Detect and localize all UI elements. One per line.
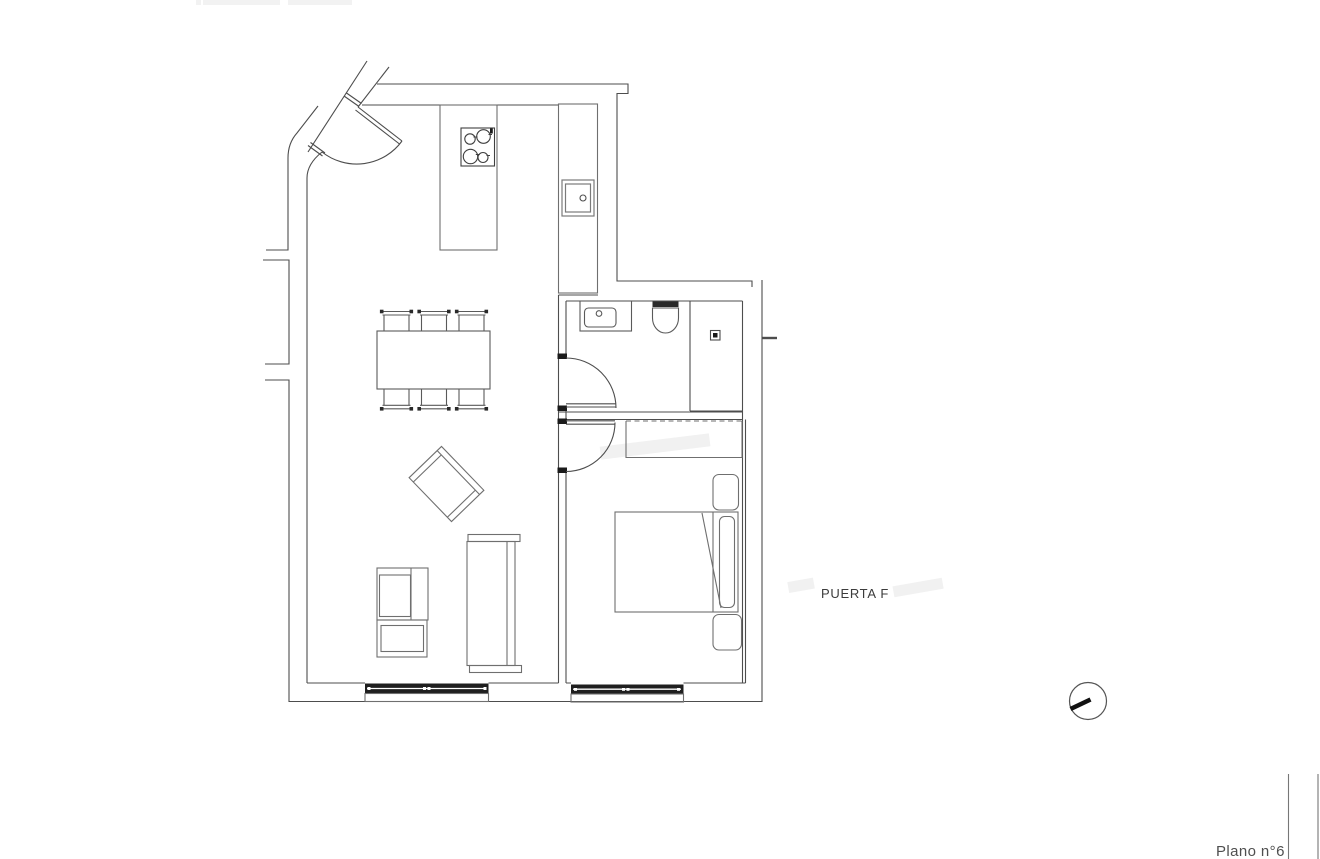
dining-chairs bbox=[380, 310, 488, 411]
armchair bbox=[409, 446, 484, 521]
sheet-number-label: Plano n°6 bbox=[1216, 843, 1285, 859]
entry-door bbox=[308, 93, 402, 164]
sink-icon bbox=[562, 180, 594, 216]
dining-table bbox=[377, 331, 490, 389]
bed bbox=[615, 512, 738, 612]
floor-plan-page: PUERTA F Plano n°6 bbox=[0, 0, 1320, 859]
nightstand-bottom bbox=[713, 615, 742, 651]
living-room-window bbox=[365, 684, 489, 702]
toilet-icon bbox=[653, 302, 679, 334]
bathroom-door bbox=[566, 358, 616, 408]
faint-header-strip bbox=[196, 0, 352, 5]
nightstand-top bbox=[713, 475, 739, 511]
title-block bbox=[1289, 774, 1319, 859]
north-indicator-icon bbox=[1070, 683, 1107, 720]
kitchen-island bbox=[440, 105, 497, 250]
door-label: PUERTA F bbox=[821, 586, 889, 601]
bedroom-window bbox=[571, 685, 684, 703]
floor-plan-drawing bbox=[0, 0, 1320, 859]
shower-drain-icon bbox=[711, 331, 721, 341]
tv-stand bbox=[377, 568, 428, 657]
walls bbox=[263, 61, 777, 702]
washbasin bbox=[580, 301, 632, 331]
kitchen-counter bbox=[559, 104, 598, 293]
sofa bbox=[467, 535, 522, 673]
stove-icon bbox=[461, 128, 495, 166]
